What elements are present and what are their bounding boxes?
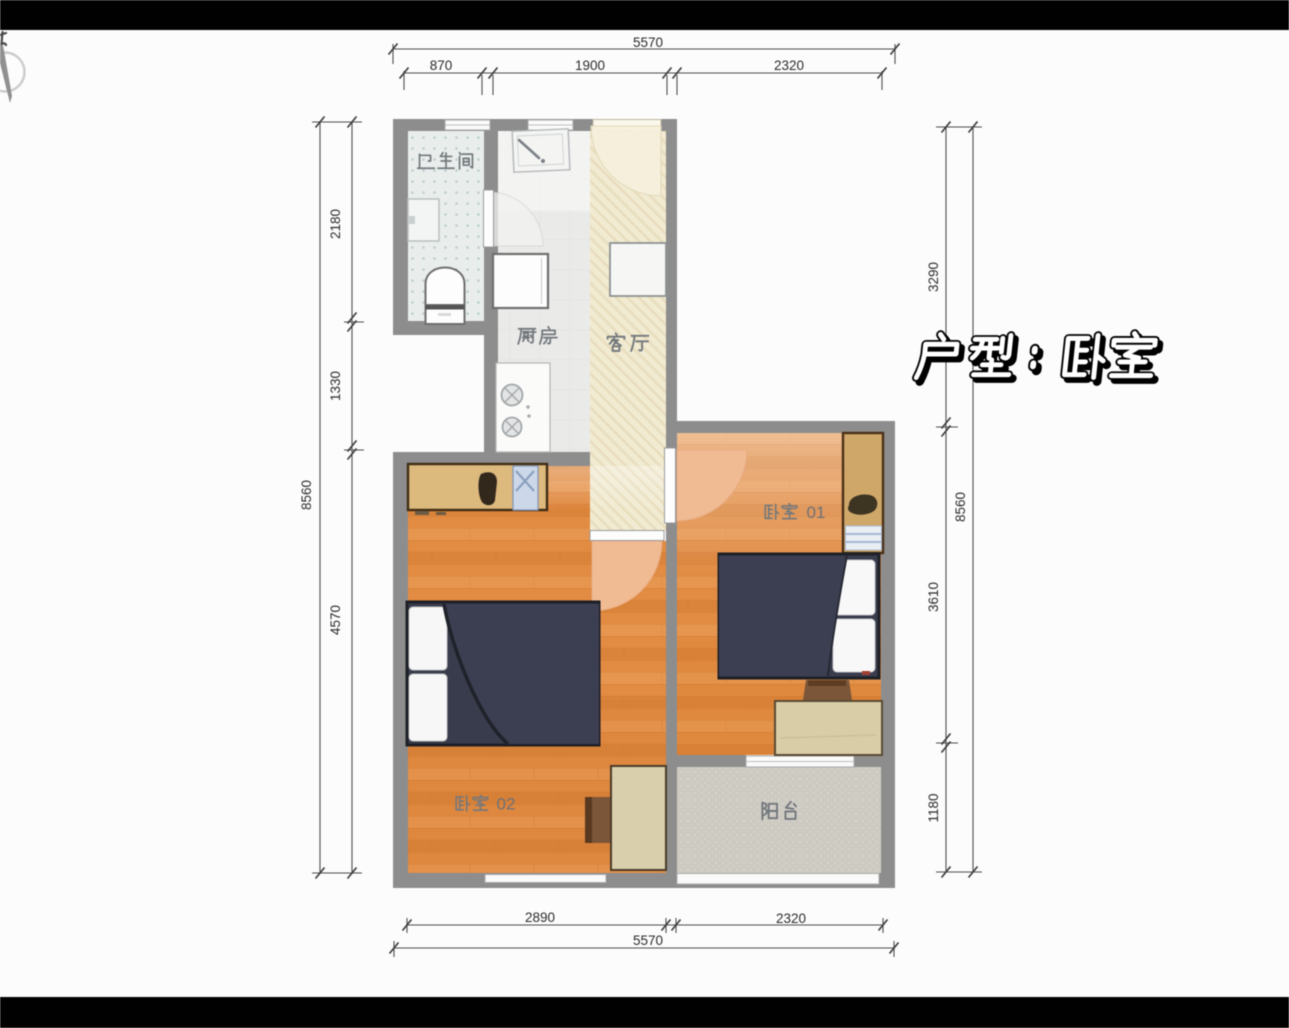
svg-text:2320: 2320 [776,911,806,926]
svg-text:1330: 1330 [328,371,343,401]
svg-text:2180: 2180 [328,209,343,239]
svg-text:02: 02 [497,795,516,814]
svg-text:5570: 5570 [633,933,663,948]
svg-text:8560: 8560 [953,492,968,522]
svg-text:3290: 3290 [926,262,941,292]
svg-text:3610: 3610 [926,582,941,612]
svg-text:01: 01 [807,503,826,522]
svg-text:870: 870 [430,58,453,73]
svg-text:2890: 2890 [525,910,555,925]
svg-text:1180: 1180 [926,793,941,822]
svg-text:2320: 2320 [774,58,804,73]
svg-text:1900: 1900 [575,58,605,73]
svg-text:5570: 5570 [633,35,663,50]
svg-text:4570: 4570 [328,605,343,635]
svg-text:8560: 8560 [299,480,314,510]
